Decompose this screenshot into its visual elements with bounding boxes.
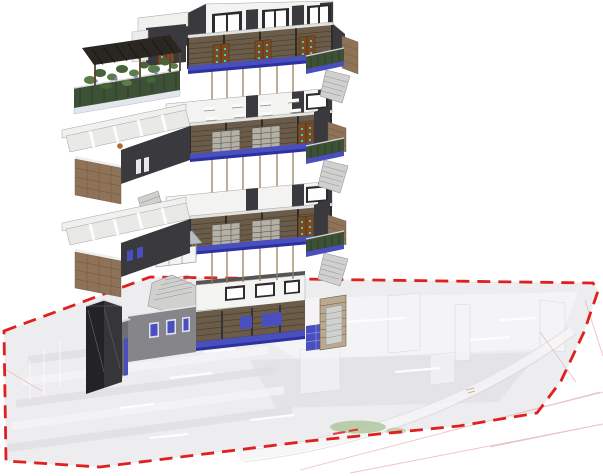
l3-round-table	[117, 143, 123, 149]
l4-roof-terrace	[74, 12, 188, 114]
l2-wing-window	[137, 247, 143, 259]
ground-core-tower-right-face	[104, 300, 122, 388]
ground-glazing	[262, 312, 282, 327]
ghost-wall	[455, 304, 470, 361]
ground-glazing	[240, 316, 252, 329]
model-viewport	[0, 0, 603, 476]
ghost-wall	[300, 346, 340, 394]
ghost-wall	[388, 293, 420, 353]
l3-wing-window	[144, 157, 149, 172]
entrance-sidelight	[124, 338, 128, 376]
l2-back-window-pane	[308, 187, 326, 201]
ghost-planting-patch	[330, 421, 386, 434]
l2-wing-window	[127, 250, 133, 262]
l3-wing-window	[136, 159, 141, 174]
exploded-axon-drawing	[0, 0, 603, 476]
ground-right-stair	[326, 305, 342, 345]
